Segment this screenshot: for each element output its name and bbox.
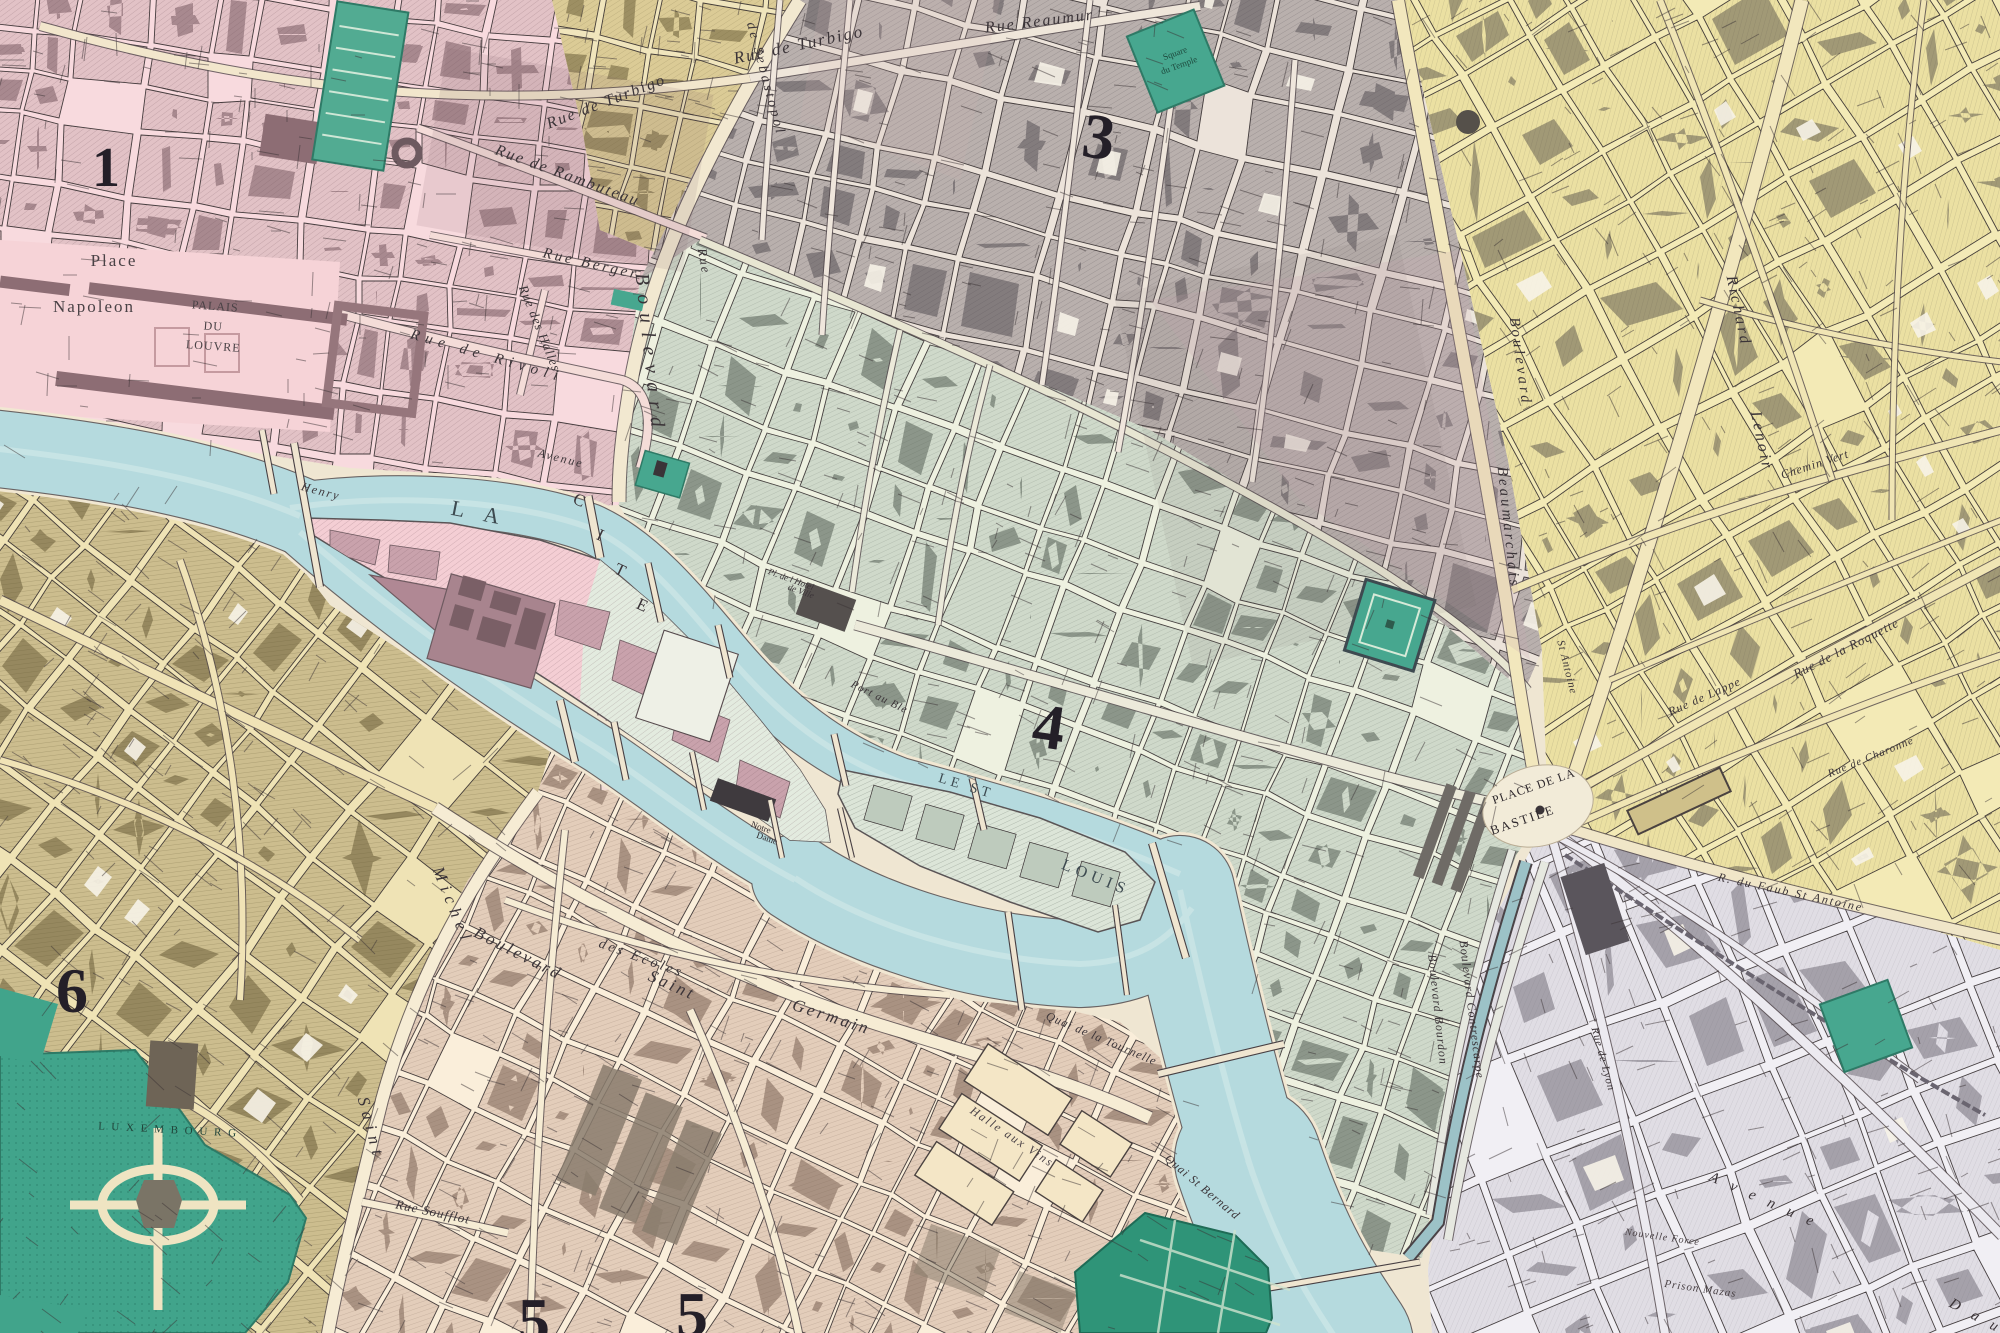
svg-text:5: 5: [518, 1285, 550, 1333]
svg-text:Napoleon: Napoleon: [53, 297, 135, 316]
svg-text:6: 6: [56, 955, 88, 1026]
svg-text:1: 1: [92, 137, 120, 199]
svg-text:5: 5: [676, 1279, 708, 1333]
svg-text:DU: DU: [203, 318, 223, 333]
svg-text:Place: Place: [91, 251, 138, 270]
